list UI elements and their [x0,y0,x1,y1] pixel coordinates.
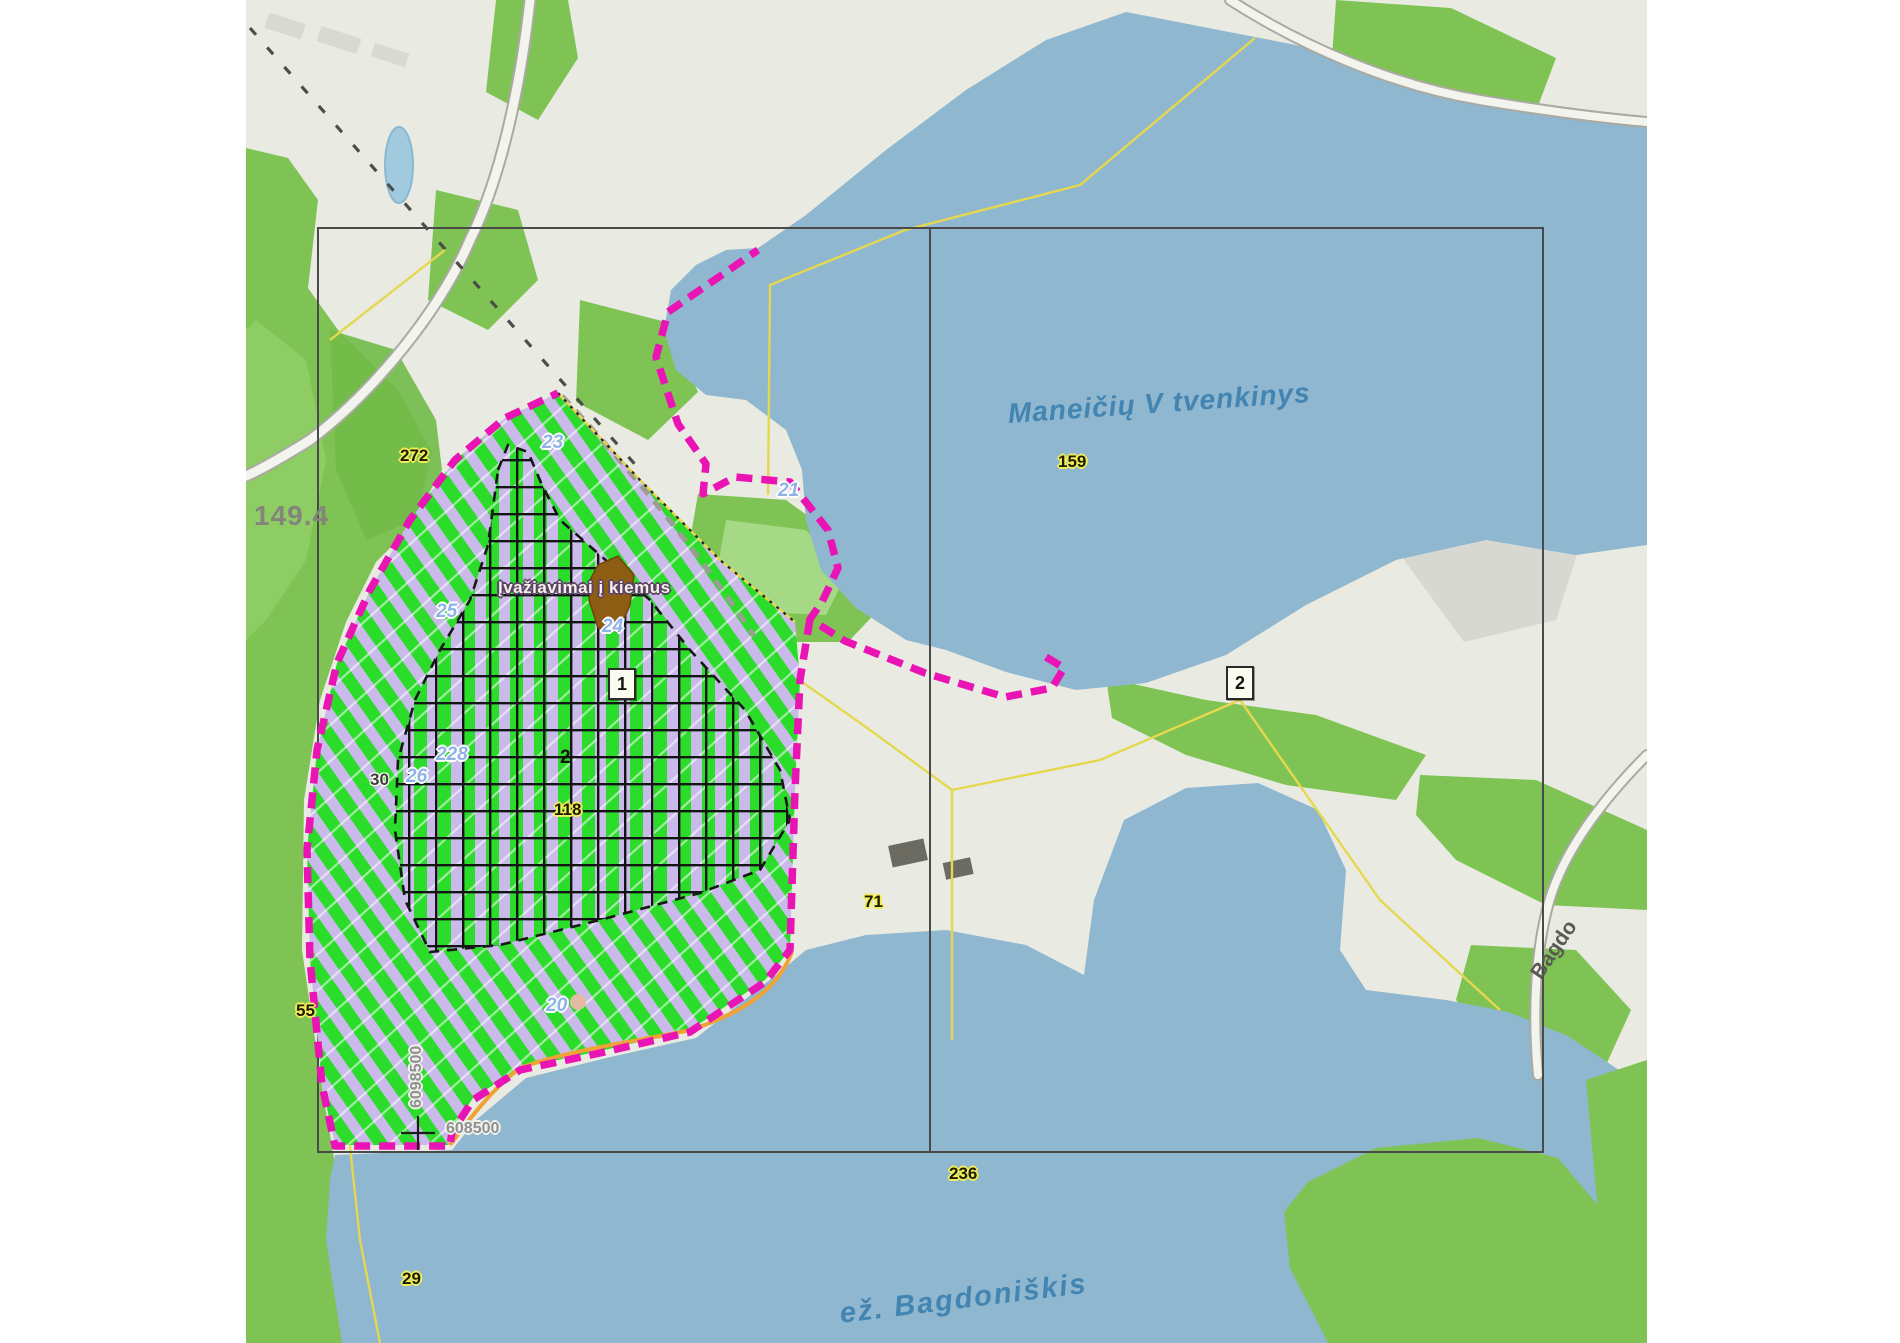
marker-box-2: 2 [1226,666,1254,700]
plan-number-26: 26 [406,766,427,788]
plan-number-20: 20 [546,995,567,1017]
map-graphics [246,0,1647,1343]
marker-box-1: 1 [608,668,636,700]
parcel-number-29: 29 [402,1269,421,1289]
parcel-number-118: 118 [554,800,581,820]
parcel-number-272: 272 [400,446,428,466]
plan-number-23: 23 [542,432,563,454]
parcel-number-71: 71 [864,892,883,912]
parcel-number-236: 236 [949,1164,977,1184]
plan-number-21: 21 [778,480,799,502]
map-canvas[interactable]: Maneičių V tvenkinys ež. Bagdoniškis Bag… [246,0,1647,1343]
area-number: 149.4 [254,500,329,532]
plan-number-25: 25 [436,601,457,623]
coordinate-northing: 6098500 [408,1046,426,1108]
number-30: 30 [370,770,389,790]
shore-spot [570,994,586,1010]
plan-number-228: 228 [436,744,468,766]
screenshot-stage: Maneičių V tvenkinys ež. Bagdoniškis Bag… [0,0,1900,1343]
plan-number-24: 24 [602,616,623,638]
entrance-note-label: Įvažiavimai į kiemus [498,578,671,598]
parcel-number-55: 55 [296,1001,315,1021]
sub-area-2: 2 [560,747,571,769]
coordinate-easting: 608500 [446,1120,499,1138]
parcel-number-159: 159 [1058,452,1086,472]
pond [385,127,413,203]
